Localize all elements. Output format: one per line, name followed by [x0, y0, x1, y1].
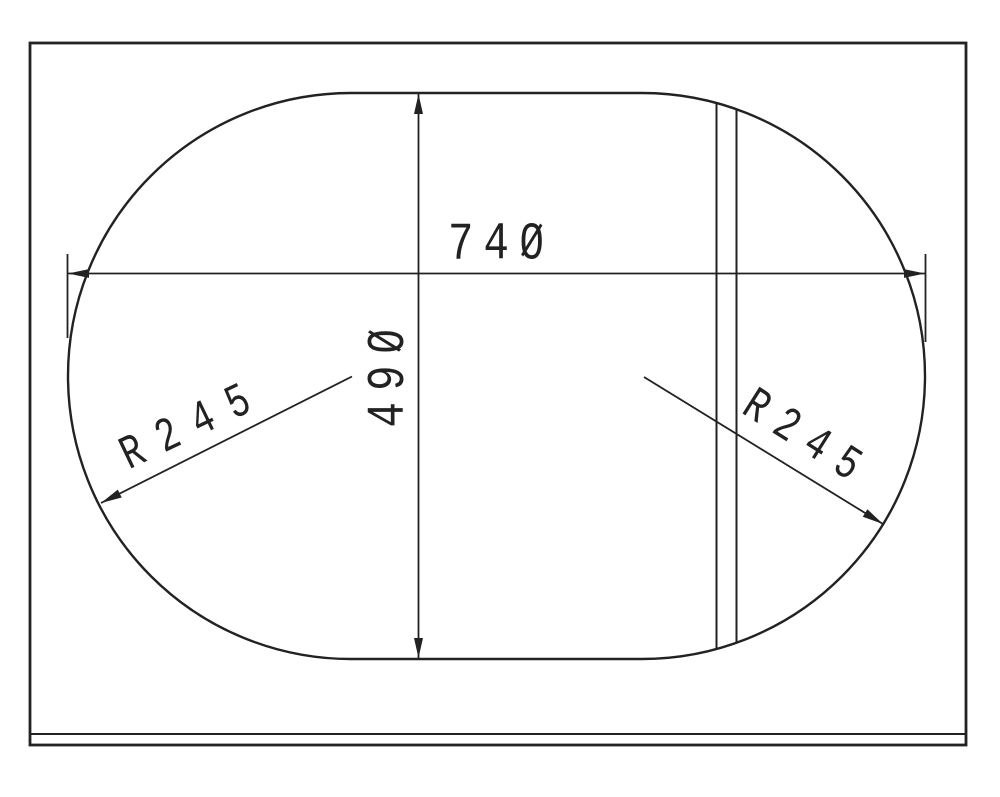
- svg-text:490: 490: [360, 318, 420, 428]
- svg-text:740: 740: [448, 215, 555, 275]
